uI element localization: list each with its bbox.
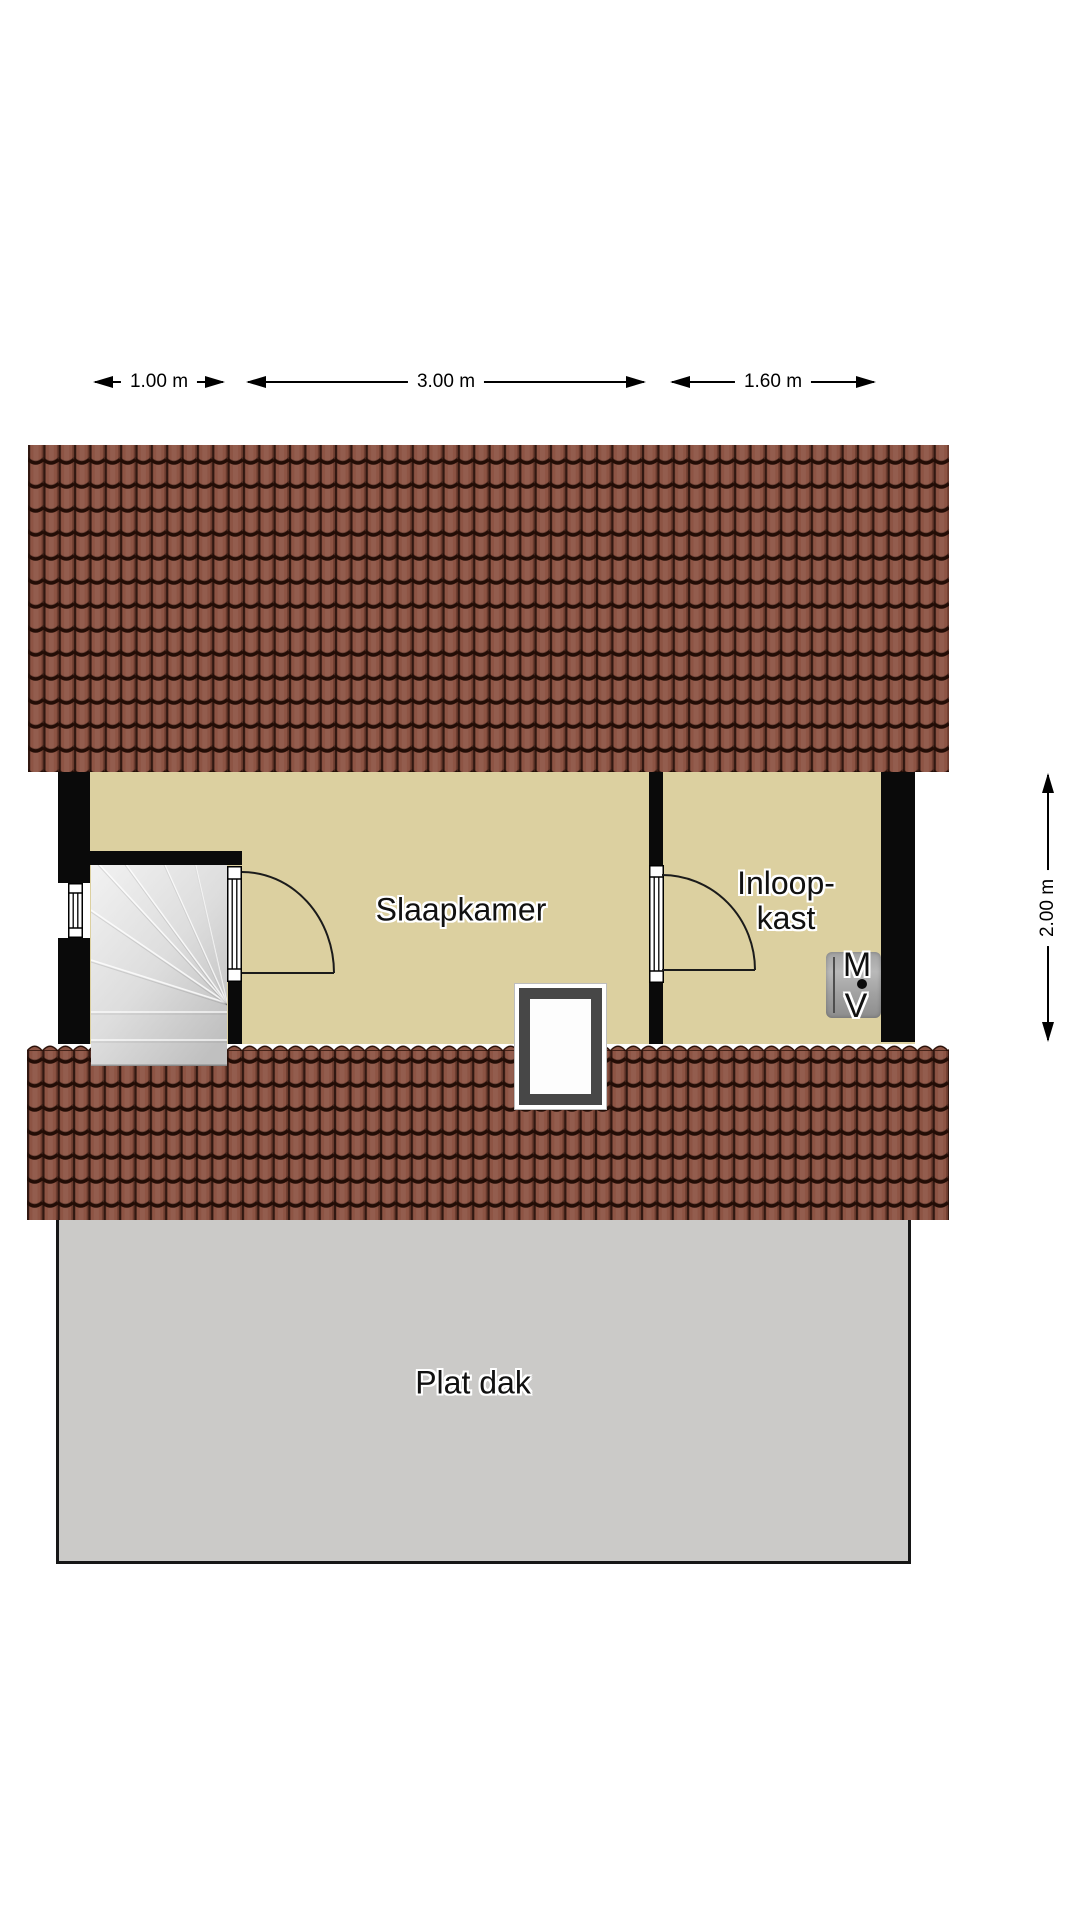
mv-unit-edge-line (833, 957, 835, 1013)
window-symbol-west (58, 883, 90, 938)
wall-partition-upper (649, 772, 663, 865)
wall-west-upper (58, 772, 90, 883)
skylight-frame (519, 988, 602, 1105)
wall-partition-lower (649, 983, 663, 1044)
room-label-closet-line2: kast (737, 901, 835, 936)
wall-west-lower (58, 938, 90, 1044)
roof-lower (27, 1044, 949, 1220)
dimension-label: 3.00 m (408, 371, 484, 393)
dimension-label: 2.00 m (1037, 869, 1059, 945)
stair-east-wall-lower (228, 982, 242, 1044)
stair-north-wall (90, 851, 242, 865)
mv-letter-bottom: V (845, 989, 868, 1023)
arrowhead-up-icon (1042, 773, 1054, 793)
door-frame-bedroom (227, 866, 242, 982)
room-label-flat-roof: Plat dak (415, 1366, 531, 1401)
arrowhead-right-icon (626, 376, 646, 388)
dimension-label: 1.00 m (121, 371, 197, 393)
roof-upper (28, 445, 949, 772)
staircase-symbol (91, 863, 227, 1066)
room-label-bedroom: Slaapkamer (376, 893, 547, 928)
mv-unit-symbol: M V (826, 952, 881, 1018)
mv-letter-top: M (843, 948, 871, 982)
wall-east (881, 772, 915, 1042)
skylight-window (514, 983, 607, 1110)
room-label-closet-line1: Inloop- (737, 866, 835, 901)
arrowhead-left-icon (246, 376, 266, 388)
arrowhead-left-icon (670, 376, 690, 388)
arrowhead-left-icon (93, 376, 113, 388)
arrowhead-down-icon (1042, 1022, 1054, 1042)
arrowhead-right-icon (856, 376, 876, 388)
door-frame-closet (649, 865, 664, 983)
dimension-right: 2.00 m (1041, 773, 1055, 1042)
floor-plan-canvas: 1.00 m 3.00 m 1.60 m 2.00 m (0, 0, 1080, 1920)
room-label-closet: Inloop- kast (737, 866, 835, 936)
dimension-top-2: 3.00 m (246, 375, 646, 389)
arrowhead-right-icon (205, 376, 225, 388)
dimension-top-3: 1.60 m (670, 375, 876, 389)
dimension-label: 1.60 m (735, 371, 811, 393)
dimension-top-1: 1.00 m (93, 375, 225, 389)
